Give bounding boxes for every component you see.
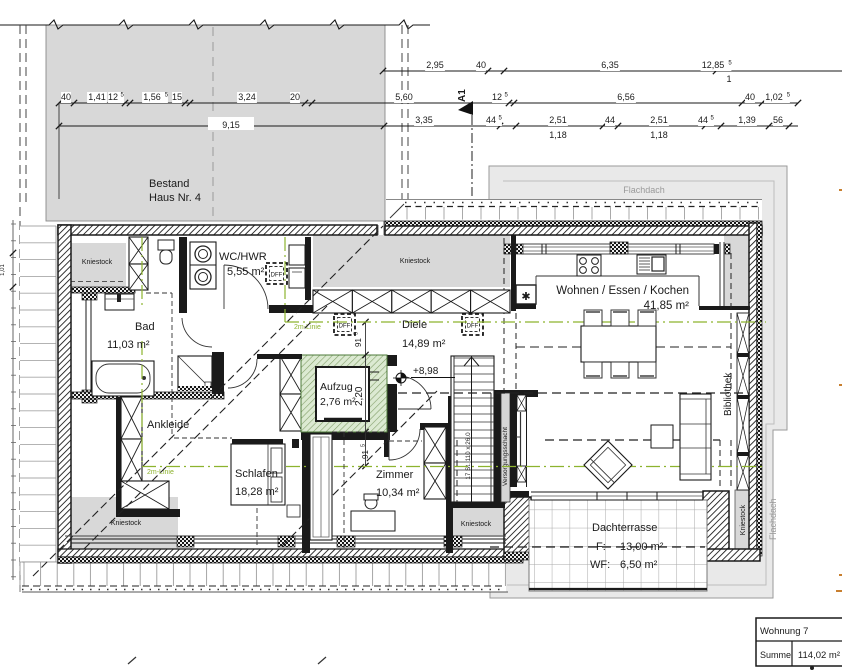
svg-text:12,85: 12,85	[702, 60, 725, 70]
svg-text:2,76 m²: 2,76 m²	[320, 396, 356, 408]
svg-text:1,18: 1,18	[549, 130, 567, 140]
svg-text:2,20: 2,20	[354, 386, 365, 406]
svg-text:14,89 m²: 14,89 m²	[402, 338, 446, 350]
svg-text:40: 40	[745, 92, 755, 102]
svg-text:44: 44	[698, 115, 708, 125]
svg-text:1,02: 1,02	[765, 92, 783, 102]
svg-text:Wohnen / Essen / Kochen: Wohnen / Essen / Kochen	[556, 285, 689, 297]
svg-text:Kniestock: Kniestock	[740, 504, 747, 535]
svg-text:Kniestock: Kniestock	[461, 521, 492, 528]
svg-text:2,51: 2,51	[549, 115, 567, 125]
svg-text:5,55 m²: 5,55 m²	[227, 266, 265, 278]
svg-text:DFF: DFF	[271, 273, 283, 279]
svg-text:+8,98: +8,98	[413, 366, 439, 377]
svg-text:✱: ✱	[521, 291, 530, 303]
svg-text:114,02 m²: 114,02 m²	[798, 650, 840, 661]
svg-text:9,15: 9,15	[222, 120, 240, 130]
svg-text:13,00 m²: 13,00 m²	[620, 541, 664, 553]
svg-text:6,56: 6,56	[617, 92, 635, 102]
svg-text:WF:: WF:	[590, 559, 610, 571]
svg-text:18,28 m²: 18,28 m²	[235, 486, 279, 498]
svg-text:2,51: 2,51	[650, 115, 668, 125]
svg-text:Bad: Bad	[135, 321, 155, 333]
svg-text:40: 40	[476, 60, 486, 70]
svg-text:1: 1	[726, 74, 731, 84]
svg-text:Summe: Summe	[760, 650, 791, 660]
svg-text:A1: A1	[457, 89, 468, 102]
svg-text:91: 91	[354, 338, 363, 347]
svg-text:41,85 m²: 41,85 m²	[644, 300, 690, 312]
svg-text:WC/HWR: WC/HWR	[219, 251, 267, 263]
svg-text:6,50 m²: 6,50 m²	[620, 559, 658, 571]
svg-text:1,56: 1,56	[143, 92, 161, 102]
svg-text:Zimmer: Zimmer	[376, 469, 414, 481]
svg-text:44: 44	[486, 115, 496, 125]
svg-text:5,60: 5,60	[395, 92, 413, 102]
svg-text:Bibliothek: Bibliothek	[723, 372, 734, 416]
svg-text:10,34 m²: 10,34 m²	[376, 487, 420, 499]
svg-text:Schlafen: Schlafen	[235, 468, 278, 480]
svg-text:Kniestock: Kniestock	[400, 258, 431, 265]
svg-text:Haus Nr. 4: Haus Nr. 4	[149, 192, 201, 204]
svg-text:Dachterrasse: Dachterrasse	[592, 522, 657, 534]
svg-text:12: 12	[492, 92, 502, 102]
svg-text:6,35: 6,35	[601, 60, 619, 70]
svg-text:1,41: 1,41	[88, 92, 106, 102]
svg-text:Kniestock: Kniestock	[111, 520, 142, 527]
svg-text:Diele: Diele	[402, 319, 427, 331]
svg-text:12: 12	[108, 92, 118, 102]
svg-text:Kniestock: Kniestock	[82, 259, 113, 266]
svg-text:Wohnung 7: Wohnung 7	[760, 626, 808, 637]
svg-text:11,03 m²: 11,03 m²	[107, 339, 150, 351]
svg-text:Versorgungsschacht: Versorgungsschacht	[502, 427, 509, 486]
svg-text:DFF: DFF	[467, 324, 479, 330]
svg-text:Flachdach: Flachdach	[623, 185, 665, 195]
svg-text:91: 91	[361, 450, 370, 459]
svg-text:2,95: 2,95	[426, 60, 444, 70]
svg-text:15: 15	[172, 92, 182, 102]
svg-text:DFF: DFF	[339, 324, 351, 330]
svg-text:5: 5	[361, 444, 367, 447]
svg-text:17 St. 110 x 26.0: 17 St. 110 x 26.0	[465, 432, 472, 480]
svg-text:Aufzug: Aufzug	[320, 381, 353, 393]
svg-text:Ankleide: Ankleide	[147, 419, 189, 431]
svg-text:20: 20	[290, 92, 300, 102]
svg-text:56: 56	[773, 115, 783, 125]
svg-text:3,35: 3,35	[415, 115, 433, 125]
svg-text:Flachdach: Flachdach	[768, 498, 778, 540]
svg-text:1,01: 1,01	[0, 264, 6, 276]
svg-text:40: 40	[61, 92, 71, 102]
svg-text:Bestand: Bestand	[149, 178, 189, 190]
svg-text:3,24: 3,24	[238, 92, 256, 102]
svg-text:44: 44	[605, 115, 615, 125]
svg-text:1,39: 1,39	[738, 115, 756, 125]
svg-text:1,18: 1,18	[650, 130, 668, 140]
